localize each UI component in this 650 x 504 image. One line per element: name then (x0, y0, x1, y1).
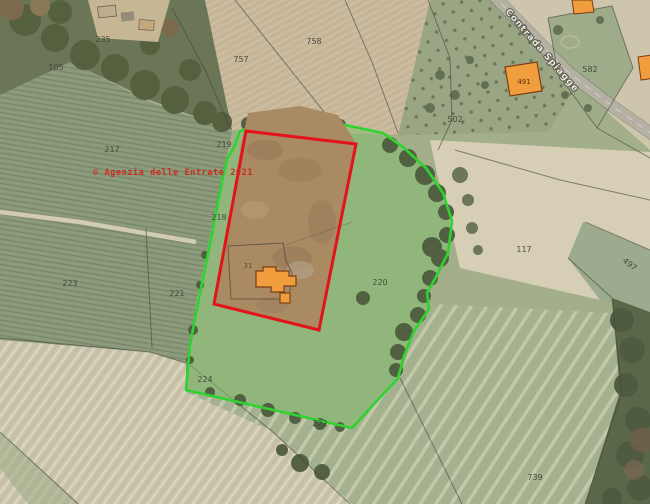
copyright-watermark: © Agenzia delle Entrate 2021 (93, 167, 253, 178)
parcel-label-220: 220 (372, 278, 387, 287)
parcel-label-224: 224 (197, 375, 212, 384)
parcel-label-502: 502 (447, 115, 462, 124)
parcel-label-117: 117 (516, 245, 531, 254)
parcel-label-223: 223 (62, 279, 77, 288)
parcel-label-217: 217 (104, 145, 119, 154)
map-canvas[interactable]: 235 105 757 758 217 219 502 582 218 117 … (0, 0, 650, 504)
parcel-label-105: 105 (48, 63, 63, 72)
parcel-label-739: 739 (527, 473, 542, 482)
parcel-label-221: 221 (169, 289, 184, 298)
parcel-label-757: 757 (233, 55, 248, 64)
cadastral-map-view: 235 105 757 758 217 219 502 582 218 117 … (0, 0, 650, 504)
annex-building-footprint[interactable] (280, 293, 290, 303)
building-top-edge[interactable] (572, 0, 594, 14)
parcel-label-219: 219 (216, 140, 231, 149)
building-label-491: 491 (517, 78, 530, 86)
parcel-label-222: 222 (312, 419, 327, 428)
parcel-label-582: 582 (582, 65, 597, 74)
parcel-label-235: 235 (95, 35, 110, 44)
parcel-label-758: 758 (306, 37, 321, 46)
parcel-label-218: 218 (211, 213, 226, 222)
parcel-label-31: 31 (244, 262, 253, 270)
